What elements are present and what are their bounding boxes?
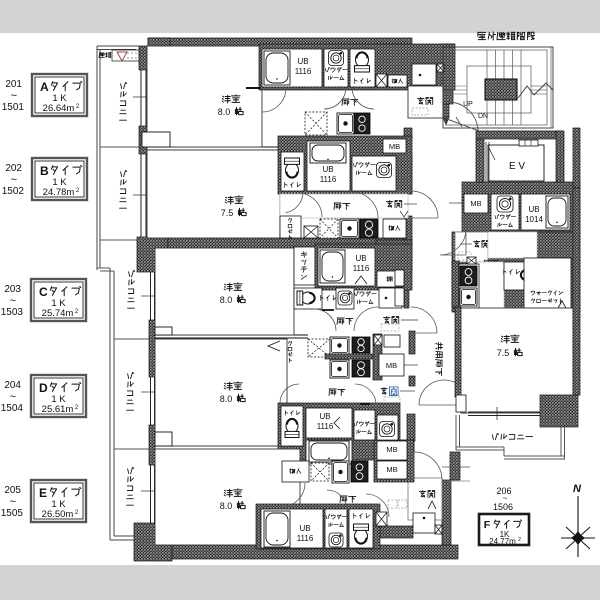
svg-text:~: ~ (10, 391, 16, 403)
svg-text:205: 205 (4, 485, 21, 496)
svg-text:204: 204 (4, 380, 21, 391)
svg-text:A: A (40, 80, 49, 94)
svg-text:F: F (484, 519, 491, 531)
svg-text:202: 202 (5, 163, 22, 174)
svg-text:26.64m: 26.64m (43, 103, 75, 114)
svg-text:2: 2 (518, 537, 521, 543)
svg-text:1014: 1014 (525, 215, 543, 224)
svg-text:UB: UB (322, 165, 333, 174)
svg-text:24.77m: 24.77m (489, 537, 516, 546)
svg-text:7.5: 7.5 (497, 348, 510, 358)
svg-text:25.61m: 25.61m (42, 404, 74, 415)
svg-text:1501: 1501 (2, 102, 25, 113)
svg-text:UB: UB (297, 57, 308, 66)
svg-text:201: 201 (5, 79, 22, 90)
svg-text:1502: 1502 (2, 186, 25, 197)
svg-text:~: ~ (10, 295, 16, 307)
svg-text:26.50m: 26.50m (42, 509, 74, 520)
svg-text:1505: 1505 (1, 508, 24, 519)
svg-text:B: B (40, 164, 49, 178)
svg-text:~: ~ (10, 496, 16, 508)
svg-text:MB: MB (386, 445, 397, 454)
svg-text:1503: 1503 (1, 307, 24, 318)
svg-text:E: E (39, 486, 47, 500)
svg-text:~: ~ (11, 90, 17, 102)
svg-text:D: D (39, 381, 48, 395)
svg-text:1116: 1116 (317, 422, 334, 431)
svg-text:8.0: 8.0 (220, 394, 233, 404)
svg-text:MB: MB (386, 465, 397, 474)
svg-text:~: ~ (11, 174, 17, 186)
svg-text:MB: MB (389, 142, 400, 151)
svg-text:MB: MB (386, 361, 397, 370)
svg-text:8.0: 8.0 (218, 107, 231, 117)
svg-text:MB: MB (470, 199, 481, 208)
svg-text:1116: 1116 (320, 175, 337, 184)
svg-text:1504: 1504 (1, 403, 24, 414)
svg-text:N: N (573, 483, 582, 495)
svg-text:UB: UB (528, 205, 539, 214)
svg-text:C: C (39, 285, 48, 299)
svg-text:8.0: 8.0 (220, 295, 233, 305)
svg-text:1116: 1116 (353, 264, 370, 273)
svg-text:203: 203 (4, 284, 21, 295)
svg-text:1506: 1506 (493, 502, 513, 512)
svg-text:25.74m: 25.74m (42, 308, 74, 319)
svg-text:1116: 1116 (295, 67, 312, 76)
svg-text:DN: DN (478, 113, 488, 120)
svg-text:7.5: 7.5 (221, 208, 234, 218)
svg-text:UB: UB (319, 412, 330, 421)
svg-text:E V: E V (509, 161, 525, 172)
svg-text:1116: 1116 (297, 534, 314, 543)
svg-text:UB: UB (355, 254, 366, 263)
svg-text:8.0: 8.0 (220, 501, 233, 511)
svg-text:24.78m: 24.78m (43, 187, 75, 198)
svg-text:UB: UB (299, 524, 310, 533)
